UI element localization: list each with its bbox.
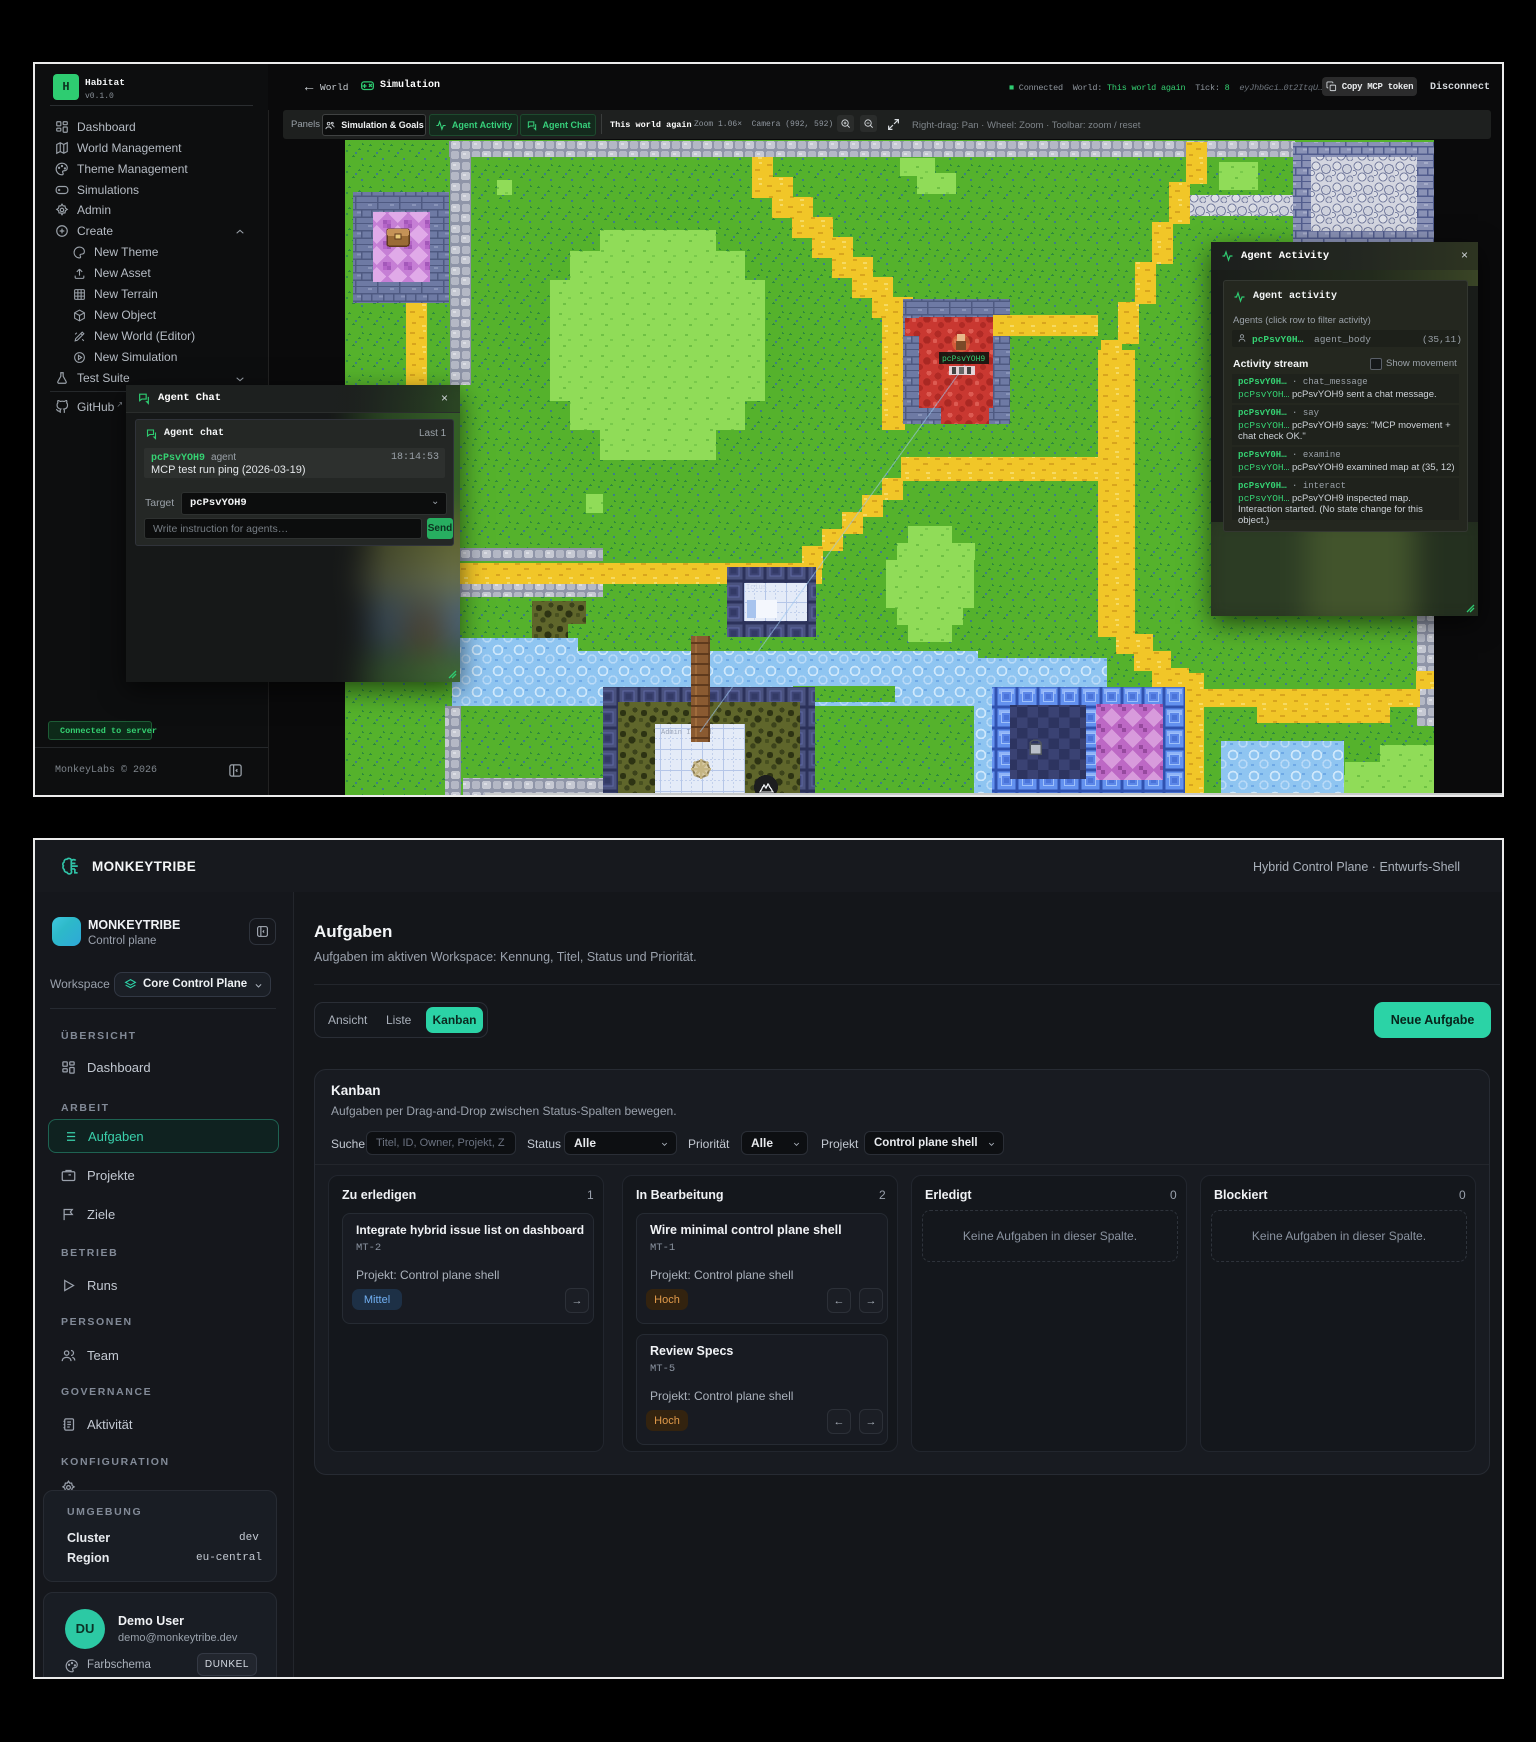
svg-text:pcPsvYOH9: pcPsvYOH9 [942, 355, 985, 364]
svg-text:Icius: Icius [746, 584, 767, 592]
